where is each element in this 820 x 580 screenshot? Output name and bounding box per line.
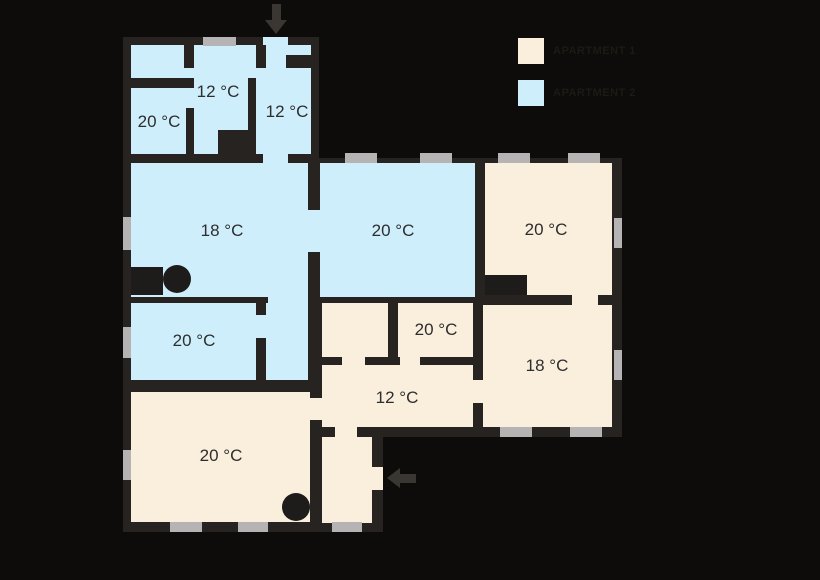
legend-swatch-apartment-1 [518, 38, 544, 64]
window [420, 153, 452, 163]
window [614, 218, 622, 248]
window [614, 350, 622, 380]
temp-label-bottom-left: 20 °C [200, 446, 243, 466]
column-marker-living [163, 265, 191, 293]
nook [322, 303, 388, 357]
temp-label-small-center: 20 °C [415, 320, 458, 340]
temp-label-small-left: 20 °C [173, 331, 216, 351]
window [568, 153, 600, 163]
interior-wall [286, 55, 311, 68]
door-smallcenter-to-hall [400, 357, 420, 365]
door-top-entrance [263, 37, 288, 47]
floor-plan-diagram: 20 °C 12 °C 12 °C 18 °C 20 °C 20 °C 20 °… [0, 0, 820, 580]
entrance-arrow-right-icon [387, 468, 400, 488]
temp-label-top-left: 20 °C [138, 112, 181, 132]
column-marker-bottom [282, 493, 310, 521]
temp-label-top-corridor: 12 °C [266, 102, 309, 122]
opening-living-to-corridor [268, 295, 308, 305]
legend-label-apartment-1: APARTMENT 1 [553, 45, 636, 57]
window [203, 37, 236, 46]
corridor-blue [266, 303, 308, 380]
window [238, 522, 268, 532]
interior-wall [184, 45, 194, 68]
window [500, 427, 532, 437]
door-living-to-center [308, 210, 320, 252]
window [345, 153, 377, 163]
interior-wall-step-block [218, 130, 256, 154]
door-righttop-to-18 [572, 295, 598, 305]
temp-label-center: 20 °C [372, 221, 415, 241]
legend-label-apartment-2: APARTMENT 2 [553, 87, 636, 99]
window [123, 217, 131, 250]
temp-label-right-bottom: 18 °C [526, 356, 569, 376]
entrance-arrow-right-shaft [399, 474, 416, 483]
fixture-block-righttop [485, 275, 527, 295]
temp-label-right-top: 20 °C [525, 220, 568, 240]
door-bottomleft-to-hall [310, 398, 322, 420]
window [332, 522, 362, 532]
entry-corridor [322, 437, 372, 523]
legend-swatch-apartment-2 [518, 80, 544, 106]
temp-label-hallway: 12 °C [376, 388, 419, 408]
window [170, 522, 202, 532]
entrance-arrow-top-icon [265, 20, 287, 34]
temp-label-living: 18 °C [201, 221, 244, 241]
window [123, 327, 131, 358]
interior-wall [131, 78, 194, 88]
window [498, 153, 530, 163]
opening-hall-to-entry [335, 420, 357, 437]
window [123, 450, 131, 480]
interior-wall [186, 108, 194, 154]
door-small-to-corridor [256, 315, 266, 338]
fixture-block-living [131, 267, 163, 295]
entrance-arrow-top-shaft [272, 4, 281, 21]
door-hall-to-18 [473, 380, 483, 403]
interior-wall [248, 78, 256, 132]
window [570, 427, 602, 437]
entrance-notch-right [372, 467, 383, 490]
door-nook-to-hall [342, 357, 365, 365]
temp-label-top-center: 12 °C [197, 82, 240, 102]
interior-wall [256, 45, 266, 68]
